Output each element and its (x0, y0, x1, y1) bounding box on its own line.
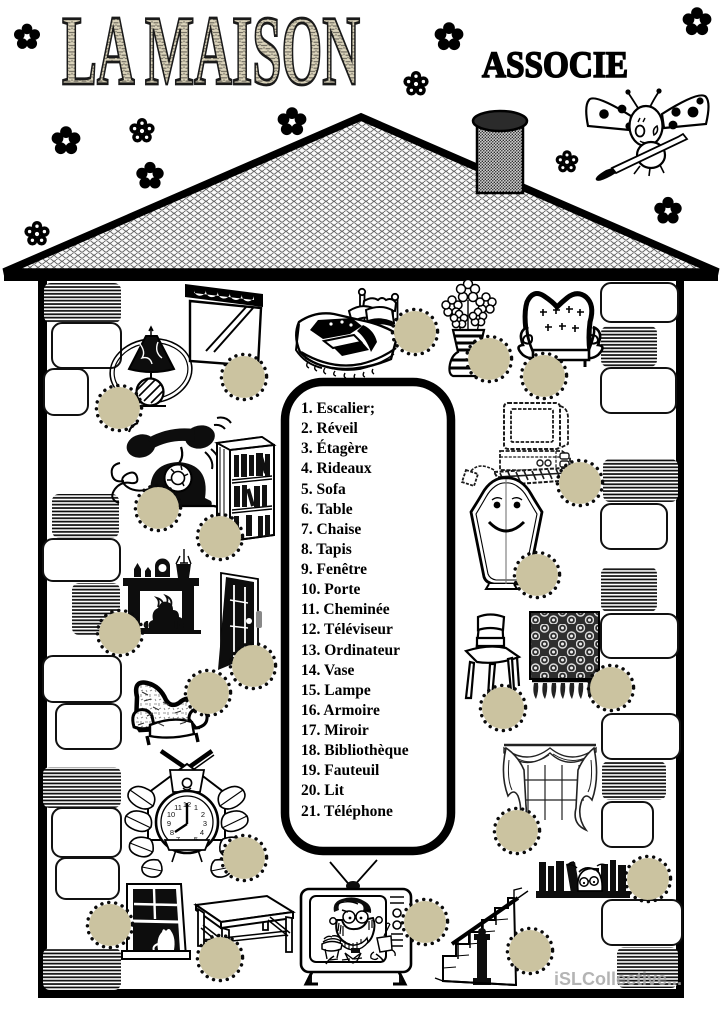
svg-text:1: 1 (194, 803, 198, 812)
svg-text:3: 3 (203, 819, 207, 828)
svg-text:LA MAISON: LA MAISON (62, 0, 360, 106)
svg-text:6. Table: 6. Table (301, 501, 353, 518)
svg-text:iSLCollective...: iSLCollective... (554, 969, 682, 989)
svg-text:2. Réveil: 2. Réveil (301, 420, 359, 437)
svg-text:8: 8 (170, 828, 174, 837)
svg-text:10. Porte: 10. Porte (301, 581, 361, 598)
svg-text:1. Escalier;: 1. Escalier; (301, 400, 375, 417)
svg-text:9. Fenêtre: 9. Fenêtre (301, 561, 367, 578)
svg-text:8. Tapis: 8. Tapis (301, 541, 352, 558)
svg-text:18. Bibliothèque: 18. Bibliothèque (301, 742, 409, 759)
svg-text:7. Chaise: 7. Chaise (301, 521, 361, 538)
svg-text:19. Fauteuil: 19. Fauteuil (301, 762, 380, 779)
svg-text:16. Armoire: 16. Armoire (301, 702, 380, 719)
svg-text:20. Lit: 20. Lit (301, 782, 345, 799)
svg-text:2: 2 (201, 810, 205, 819)
svg-text:14. Vase: 14. Vase (301, 662, 355, 679)
svg-text:11. Cheminée: 11. Cheminée (301, 601, 390, 618)
svg-text:5. Sofa: 5. Sofa (301, 481, 346, 498)
svg-text:9: 9 (167, 819, 171, 828)
svg-text:4: 4 (200, 828, 204, 837)
svg-text:11: 11 (174, 803, 182, 812)
svg-text:ASSOCIE: ASSOCIE (482, 45, 628, 86)
svg-text:3. Étagère: 3. Étagère (301, 440, 368, 457)
svg-text:21. Téléphone: 21. Téléphone (301, 803, 393, 820)
svg-text:12. Téléviseur: 12. Téléviseur (301, 621, 393, 638)
svg-text:13. Ordinateur: 13. Ordinateur (301, 642, 400, 659)
svg-text:15. Lampe: 15. Lampe (301, 682, 371, 699)
svg-text:17. Miroir: 17. Miroir (301, 722, 369, 739)
svg-text:4. Rideaux: 4. Rideaux (301, 460, 372, 477)
